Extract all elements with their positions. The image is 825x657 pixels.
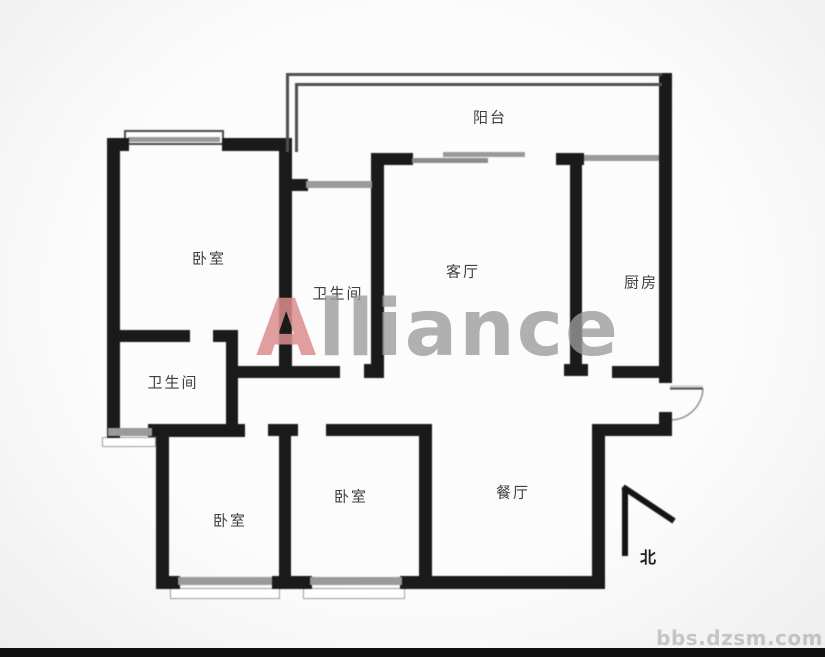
balcony-railing-line [295, 83, 298, 152]
wall-segment [326, 424, 430, 436]
wall-segment [279, 424, 291, 589]
window-glass-line [128, 137, 220, 142]
floor-plan-image: 阳台 卧室 卫生间 客厅 厨房 卫生间 卧室 卧室 餐厅 北 Alliance … [0, 0, 825, 657]
wall-segment [419, 424, 432, 589]
window-bar [108, 428, 152, 436]
master-bedroom-window [124, 130, 224, 145]
wall-segment [371, 153, 384, 375]
wall-segment [598, 424, 672, 436]
window-bar [178, 577, 272, 585]
left-bedroom-window-sill [170, 588, 280, 599]
room-label-dining-room: 餐厅 [496, 482, 530, 503]
room-label-inner-bathroom: 卫生间 [312, 283, 363, 304]
bottom-black-bar [0, 648, 825, 657]
wall-segment [148, 424, 245, 437]
balcony-railing-line [286, 73, 289, 152]
balcony-railing-line [286, 73, 662, 76]
wall-segment [379, 153, 413, 165]
room-label-left-bedroom: 卧室 [213, 510, 247, 531]
room-label-balcony: 阳台 [473, 107, 507, 128]
floor-plan-drawing [0, 0, 825, 657]
room-label-master-bedroom: 卧室 [192, 248, 226, 269]
sliding-door-line [412, 158, 488, 163]
room-label-kitchen: 厨房 [624, 272, 658, 293]
room-label-outer-bathroom: 卫生间 [147, 372, 198, 393]
window-bar [443, 152, 525, 157]
wall-segment [279, 138, 292, 378]
wall-segment [564, 364, 588, 376]
wall-segment [570, 162, 582, 375]
wall-segment [110, 330, 190, 342]
wall-segment [107, 138, 120, 438]
room-label-living-room: 客厅 [446, 261, 480, 282]
wall-segment [592, 424, 605, 588]
wall-segment [226, 366, 340, 378]
wall-segment [272, 576, 312, 589]
wall-segment [226, 330, 238, 432]
wall-segment [659, 73, 672, 383]
window-bar [306, 181, 372, 188]
balcony-railing-line [295, 83, 662, 86]
middle-bedroom-window-sill [303, 588, 405, 599]
outer-bathroom-window-sill [102, 437, 156, 447]
wall-segment [156, 424, 169, 589]
window-bar [310, 577, 402, 585]
site-watermark: bbs.dzsm.com [656, 626, 823, 650]
room-label-middle-bedroom: 卧室 [334, 486, 368, 507]
north-label: 北 [640, 544, 656, 568]
window-bar [584, 155, 662, 161]
